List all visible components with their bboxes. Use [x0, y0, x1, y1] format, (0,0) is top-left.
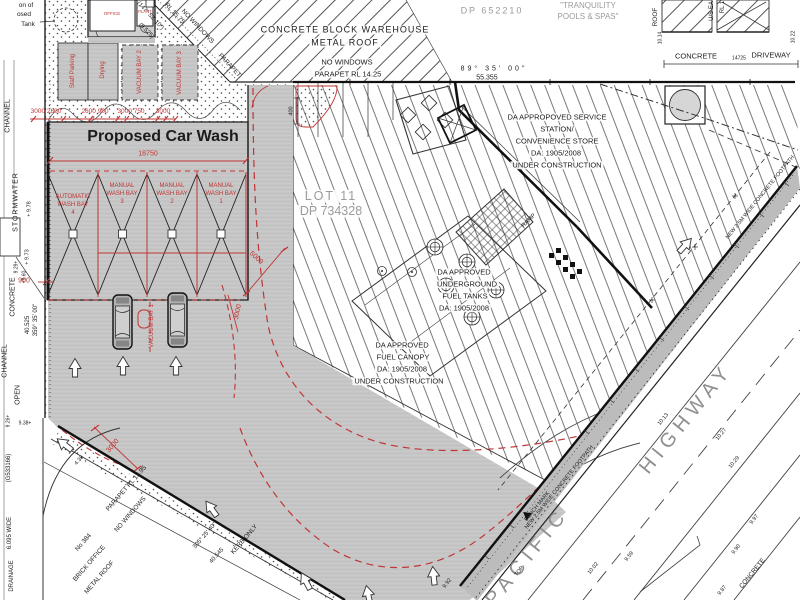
- bay1-l1: MANUAL: [208, 183, 233, 189]
- tanks-l2: UNDERGROUND: [435, 280, 499, 288]
- concrete-driveway-2: DRIVEWAY: [751, 51, 790, 59]
- west-level: +9.60: [23, 271, 28, 284]
- warehouse-l4: PARAPET RL 14.25: [313, 70, 384, 78]
- west-level: + 9.73: [25, 249, 31, 264]
- north-bearing: 89° 35' 00": [461, 66, 528, 73]
- west-level: 9.26+: [7, 415, 12, 428]
- rl-label: RL 1: [720, 1, 726, 13]
- bay1-l2: WASH BAY: [205, 191, 236, 197]
- dim-400: 400: [289, 106, 295, 115]
- canopy-l4: UNDER CONSTRUCTION: [352, 377, 445, 385]
- warehouse-l1: CONCRETE BLOCK WAREHOUSE: [259, 26, 432, 35]
- bay2-l3: 2: [170, 199, 173, 205]
- west-level: 9.38+: [19, 422, 32, 427]
- west-channel-2: CHANNEL: [2, 344, 9, 377]
- us-eave: U/S EA: [709, 1, 715, 21]
- bay1-l3: 1: [219, 199, 222, 205]
- level-1014: 10.14: [659, 32, 664, 45]
- vacuum-bay-2: VACUUM BAY 2: [137, 50, 143, 94]
- level-1022: 10.22: [792, 31, 797, 44]
- west-stormwater: STORMWATER: [13, 172, 20, 232]
- tank-note-1: on of: [19, 3, 33, 10]
- warehouse-l3: NO WINDOWS: [319, 58, 374, 66]
- warehouse-l2: METAL ROOF: [309, 39, 381, 48]
- station-l3: CONVENIENCE STORE: [514, 137, 601, 145]
- canopy-l2: FUEL CANOPY: [375, 353, 432, 361]
- dim-14725: 14725: [732, 57, 746, 62]
- dim-row-4: 3000: [156, 109, 170, 116]
- dim-overall: 18750: [138, 151, 157, 158]
- west-channel-1: CHANNEL: [5, 99, 12, 132]
- west-bearing: 359° 35' 00": [33, 304, 39, 336]
- staff-parking: Staff Parking: [70, 54, 76, 88]
- concrete-driveway-1: CONCRETE: [675, 52, 717, 60]
- north-dist: 55.355: [476, 75, 497, 82]
- tank-note-3: Tank: [21, 22, 35, 29]
- west-level: 9.29+: [15, 261, 20, 274]
- lot-name: LOT 11: [303, 190, 360, 203]
- station-l2: STATION/: [538, 125, 575, 133]
- dim-row-2: 2600 900: [81, 109, 108, 116]
- tanks-l4: DA: 1905/2008: [437, 304, 491, 312]
- bay3-l1: MANUAL: [109, 183, 134, 189]
- station-l4: DA: 1905/2008: [529, 149, 583, 157]
- tanks-l1: DA APPROVED: [435, 268, 492, 276]
- room-office: OFFICE: [104, 12, 121, 17]
- site-plan-linework: [0, 0, 800, 600]
- bay3-l3: 3: [120, 199, 123, 205]
- station-l1: DA APPROPOVED SERVICE: [505, 113, 608, 121]
- bay3-l2: WASH BAY: [106, 191, 137, 197]
- canopy-l3: DA: 1905/2008: [375, 365, 429, 373]
- site-plan: Proposed Car Wash 18750 3000 2600 2600 9…: [0, 0, 800, 600]
- dim-row-3: 3000 750: [117, 109, 144, 116]
- west-open: OPEN: [15, 385, 22, 405]
- tranquility-1: "TRANQUILITY: [560, 2, 616, 10]
- drying: Drying: [100, 61, 106, 78]
- west-dist: 40.525: [25, 316, 31, 334]
- canopy-l1: DA APPROVED: [373, 341, 430, 349]
- dim-row-1: 3000 2600: [31, 109, 62, 116]
- drainage-label: DRAINAGE: [9, 560, 15, 591]
- bay4-l2: WASH BAY: [57, 202, 88, 208]
- bay2-l1: MANUAL: [159, 183, 184, 189]
- bay4-l1: AUTOMATIC: [56, 194, 91, 200]
- drainage-g: (G533166): [6, 454, 12, 483]
- tanks-l3: FUEL TANKS: [440, 292, 489, 300]
- west-concrete: CONCRETE: [10, 277, 17, 316]
- bay2-l2: WASH BAY: [156, 191, 187, 197]
- page-title: Proposed Car Wash: [87, 129, 238, 145]
- tank-note-2: osed: [17, 12, 31, 19]
- roof-label: ROOF: [653, 8, 660, 27]
- drainage-wide: 6.095 WIDE: [7, 517, 13, 549]
- tranquility-2: POOLS & SPAS": [558, 13, 619, 21]
- dp-652210: DP 652210: [461, 7, 524, 16]
- lot-dp: DP 734328: [298, 205, 364, 218]
- vacuum-bay-3: VACUUM BAY 3: [177, 51, 183, 95]
- station-l5: UNDER CONSTRUCTION: [510, 161, 603, 169]
- bay4-l3: 4: [71, 210, 74, 216]
- vacuum-bay-1: VACUUM BAY 1: [149, 304, 155, 348]
- west-level: + 9.78: [27, 201, 33, 216]
